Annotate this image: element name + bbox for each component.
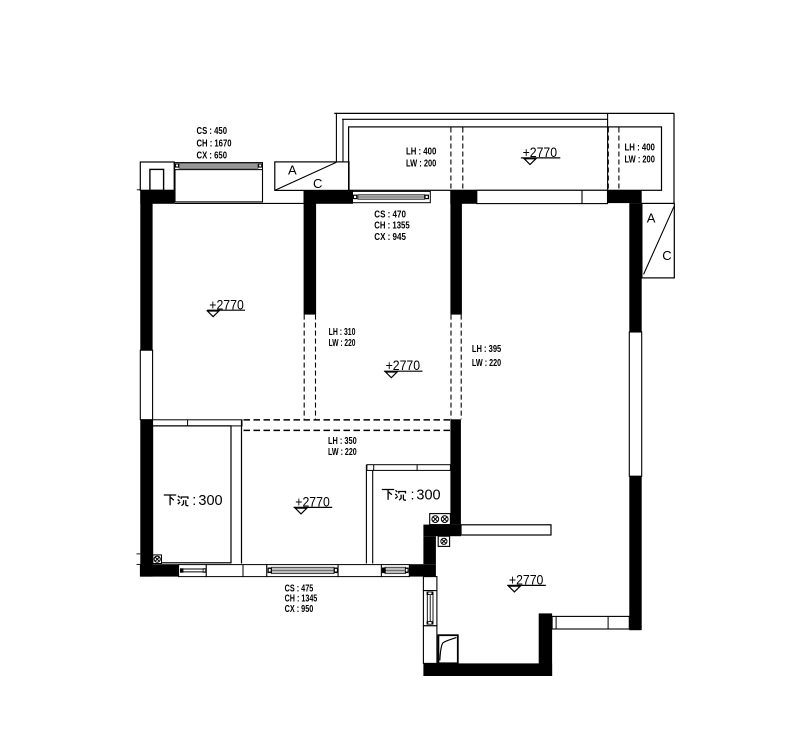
svg-text:CS : 470: CS : 470 (374, 210, 406, 221)
svg-text:CX : 650: CX : 650 (197, 151, 228, 162)
svg-text:CS : 475: CS : 475 (285, 583, 314, 594)
svg-text:LH : 400: LH : 400 (406, 147, 437, 158)
svg-text:CH : 1670: CH : 1670 (197, 138, 232, 149)
svg-text:CX : 950: CX : 950 (285, 604, 314, 615)
svg-text::: : (192, 493, 196, 509)
svg-text:C: C (662, 248, 671, 263)
svg-text:LH : 400: LH : 400 (625, 143, 656, 154)
svg-text:LH : 310: LH : 310 (329, 327, 356, 338)
svg-text:LW : 220: LW : 220 (328, 447, 357, 458)
svg-text:LW : 220: LW : 220 (329, 338, 356, 349)
svg-text:C: C (313, 176, 322, 191)
svg-text:A: A (647, 210, 656, 225)
svg-text:LW : 220: LW : 220 (472, 358, 502, 369)
svg-text:300: 300 (198, 493, 222, 509)
svg-text::: : (411, 488, 415, 504)
svg-text:300: 300 (416, 488, 440, 504)
svg-text:LW : 200: LW : 200 (625, 155, 656, 166)
svg-text:CH : 1345: CH : 1345 (285, 594, 318, 605)
svg-text:CH : 1355: CH : 1355 (374, 221, 410, 232)
svg-text:LH : 350: LH : 350 (328, 436, 357, 447)
svg-text:CS : 450: CS : 450 (197, 126, 228, 137)
svg-text:LW : 200: LW : 200 (406, 159, 437, 170)
svg-text:LH : 395: LH : 395 (472, 344, 502, 355)
svg-text:CX : 945: CX : 945 (374, 232, 406, 243)
svg-text:A: A (288, 163, 297, 178)
